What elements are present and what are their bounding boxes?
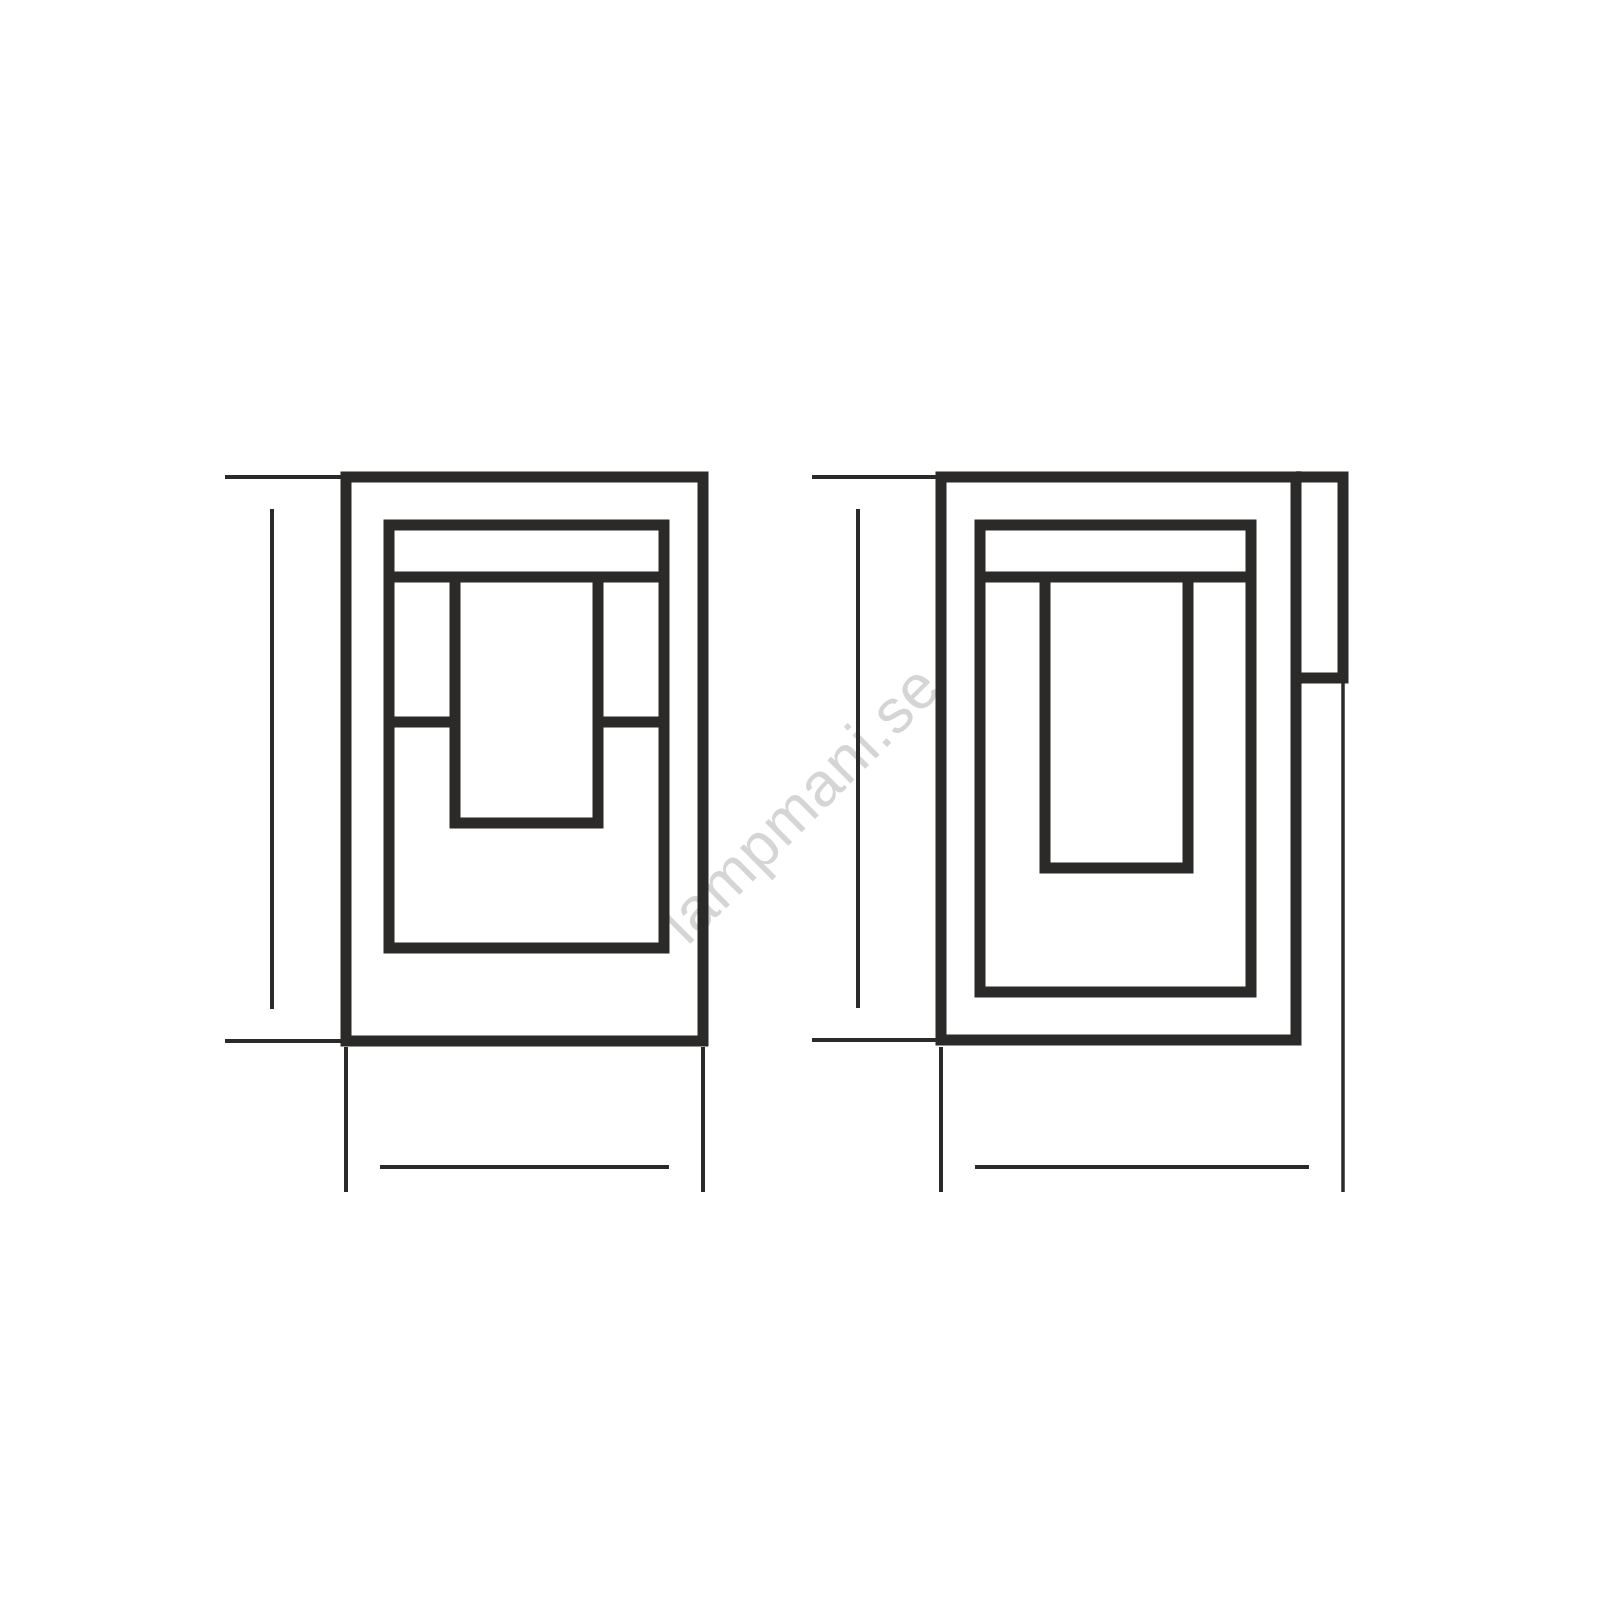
technical-drawing-page: lampmani.se 270 — [0, 0, 1599, 1600]
dimension-drawing: lampmani.se 270 — [0, 0, 1599, 1600]
